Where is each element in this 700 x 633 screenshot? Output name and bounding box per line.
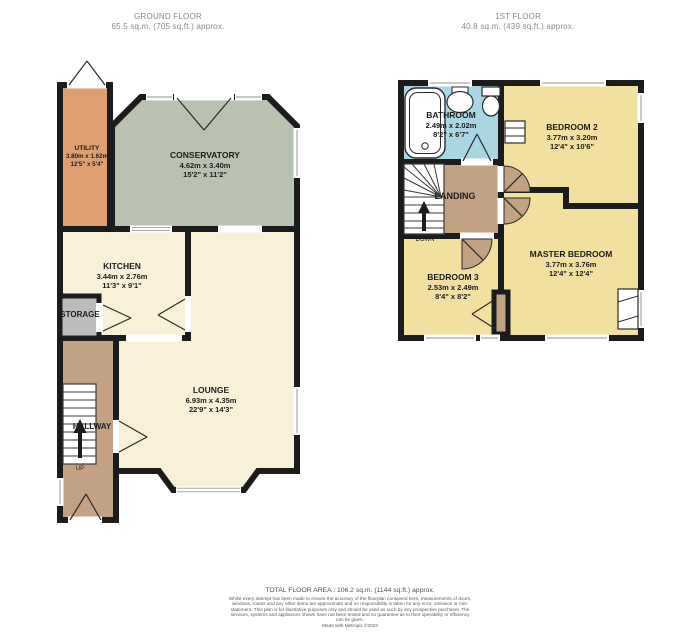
first-floor-title: 1ST FLOOR — [408, 12, 628, 22]
bedroom3-name: BEDROOM 3 — [393, 272, 513, 283]
bedroom2-metric: 3.77m x 3.20m — [512, 133, 632, 143]
kitchen-name: KITCHEN — [62, 261, 182, 272]
master-bedroom-metric: 3.77m x 3.76m — [501, 260, 641, 270]
utility-name: UTILITY — [47, 145, 127, 153]
bathroom-metric: 2.49m x 2.02m — [391, 121, 511, 131]
lounge-metric: 6.93m x 4.35m — [141, 396, 281, 406]
storage-name: STORAGE — [50, 310, 110, 320]
utility-door-opening — [67, 82, 106, 89]
storage-label: STORAGE — [50, 310, 110, 320]
disclaimer-text: Whilst every attempt has been made to en… — [228, 596, 472, 622]
utility-label: UTILITY 3.80m x 1.62m 12'5" x 5'4" — [47, 145, 127, 169]
kitchen-imperial: 11'3" x 9'1" — [62, 281, 182, 291]
master-bedroom-label: MASTER BEDROOM 3.77m x 3.76m 12'4" x 12'… — [501, 249, 641, 279]
bathroom-name: BATHROOM — [391, 110, 511, 121]
ground-floor-header: GROUND FLOOR 65.5 sq.m. (705 sq.ft.) app… — [58, 12, 278, 32]
bedroom2-imperial: 12'4" x 10'6" — [512, 142, 632, 152]
bathroom-label: BATHROOM 2.49m x 2.02m 8'2" x 6'7" — [391, 110, 511, 140]
kitchen-label: KITCHEN 3.44m x 2.76m 11'3" x 9'1" — [62, 261, 182, 291]
landing-name: LANDING — [405, 191, 505, 203]
landing-label: LANDING — [405, 191, 505, 203]
up-label: UP — [68, 466, 92, 472]
toilet-cistern — [482, 87, 500, 96]
bay-window — [176, 487, 241, 494]
hallway-label: HALLWAY — [52, 422, 132, 432]
conservatory-metric: 4.62m x 3.40m — [135, 161, 275, 171]
first-floor-area: 40.8 sq.m. (439 sq.ft.) approx. — [408, 22, 628, 32]
kitchen-door-opening — [185, 296, 191, 332]
utility-door-swing — [69, 61, 105, 85]
utility-metric: 3.80m x 1.62m — [47, 153, 127, 161]
master-bedroom-name: MASTER BEDROOM — [501, 249, 641, 260]
hallway-name: HALLWAY — [52, 422, 132, 432]
lounge-label: LOUNGE 6.93m x 4.35m 22'9" x 14'3" — [141, 385, 281, 415]
lounge-imperial: 22'9" x 14'3" — [141, 405, 281, 415]
bedroom2-name: BEDROOM 2 — [512, 122, 632, 133]
bedroom2-door-opening — [498, 166, 505, 192]
conservatory-name: CONSERVATORY — [135, 150, 275, 161]
kitchen-metric: 3.44m x 2.76m — [62, 272, 182, 282]
master-wardrobe-icon — [618, 289, 638, 329]
kitchen-lounge-opening — [126, 335, 182, 342]
bedroom3-door-opening — [460, 233, 494, 240]
conservatory-label: CONSERVATORY 4.62m x 3.40m 15'2" x 11'2" — [135, 150, 275, 180]
kitchen-conservatory-window — [130, 226, 172, 233]
french-door-opening — [174, 94, 234, 101]
master-bedroom-imperial: 12'4" x 12'4" — [501, 269, 641, 279]
down-label: DOWN — [410, 237, 440, 243]
ground-floor-plan — [57, 61, 301, 524]
front-door-opening — [68, 517, 102, 524]
ground-floor-area: 65.5 sq.m. (705 sq.ft.) approx. — [58, 22, 278, 32]
bathroom-imperial: 8'2" x 6'7" — [391, 130, 511, 140]
ground-floor-title: GROUND FLOOR — [58, 12, 278, 22]
lounge-name: LOUNGE — [141, 385, 281, 396]
conservatory-imperial: 15'2" x 11'2" — [135, 170, 275, 180]
bedroom3-metric: 2.53m x 2.49m — [393, 283, 513, 293]
credit-text: Made with Metropix ©2023 — [228, 623, 472, 628]
conservatory-lounge-opening — [218, 226, 262, 233]
total-floor-area: TOTAL FLOOR AREA : 106.2 sq.m. (1144 sq.… — [130, 587, 570, 594]
bathroom-door-opening — [461, 159, 493, 166]
bedroom3-label: BEDROOM 3 2.53m x 2.49m 8'4" x 8'2" — [393, 272, 513, 302]
bedroom3-imperial: 8'4" x 8'2" — [393, 292, 513, 302]
floorplan-page: GROUND FLOOR 65.5 sq.m. (705 sq.ft.) app… — [0, 0, 700, 633]
utility-imperial: 12'5" x 5'4" — [47, 161, 127, 169]
first-floor-header: 1ST FLOOR 40.8 sq.m. (439 sq.ft.) approx… — [408, 12, 628, 32]
bedroom2-label: BEDROOM 2 3.77m x 3.20m 12'4" x 10'6" — [512, 122, 632, 152]
